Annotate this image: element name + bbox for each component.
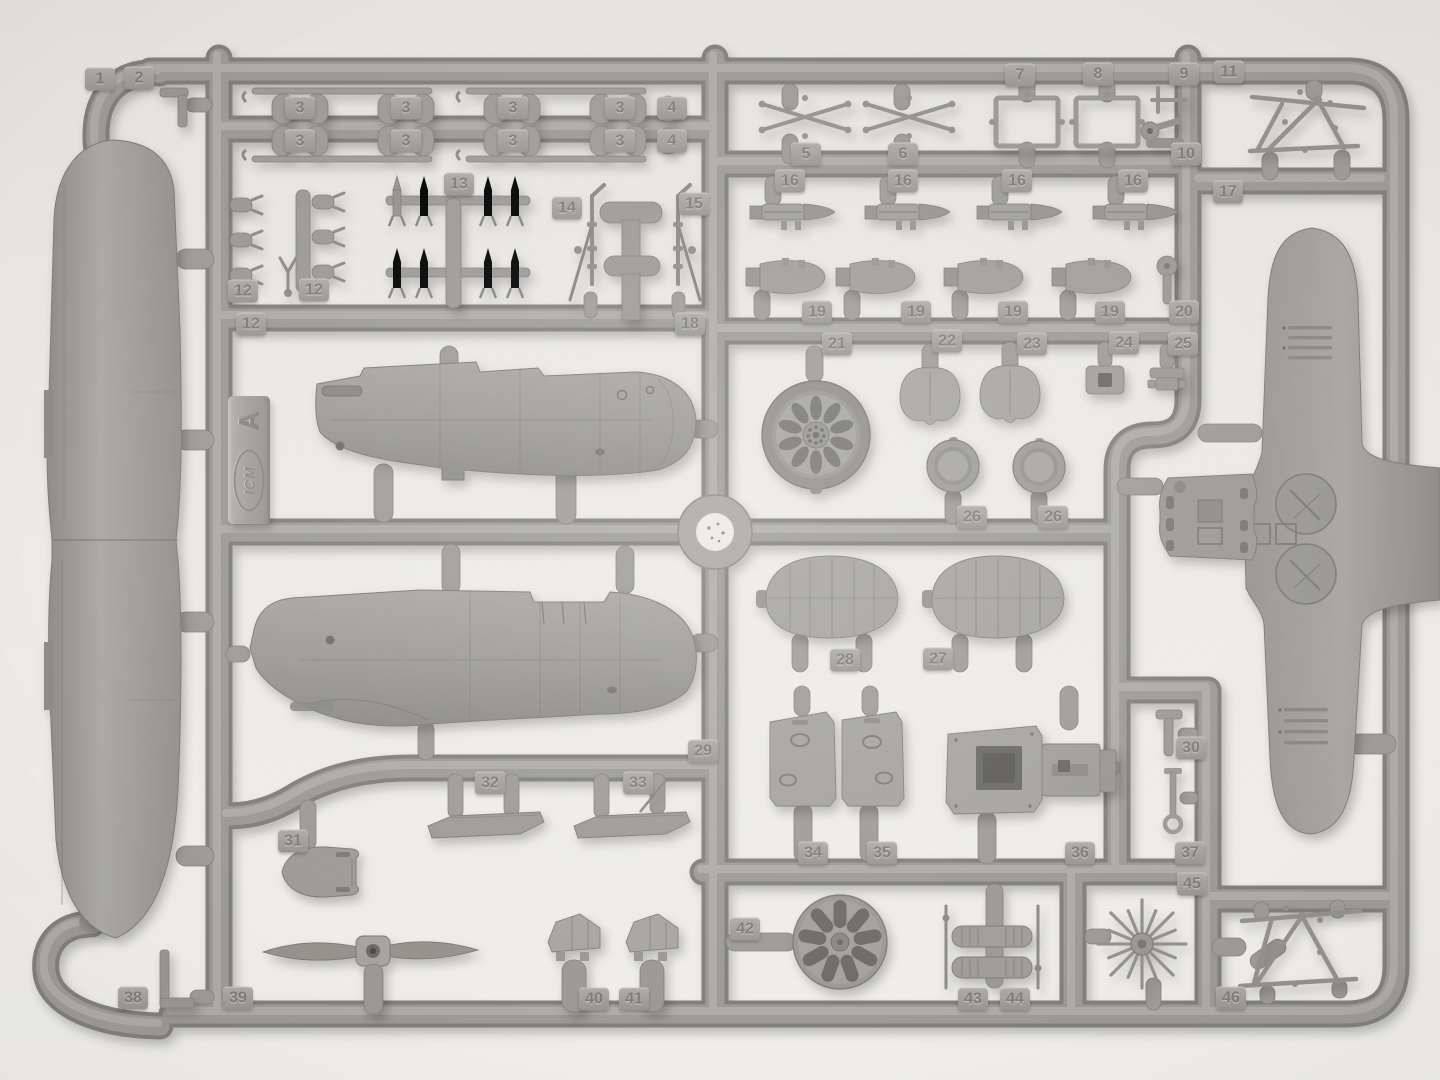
part-9-h-bracket xyxy=(1152,88,1186,112)
part-36-cockpit-floor xyxy=(946,726,1116,814)
part-45-pushrod-star xyxy=(1098,900,1186,988)
part-24-box xyxy=(1086,366,1124,394)
part-34-35-doors xyxy=(770,712,904,806)
part-19-bombs xyxy=(746,258,1131,293)
part-1-2-upper-wing-panels xyxy=(44,140,181,938)
part-l-bracket-top xyxy=(160,88,188,127)
part-13-rockets xyxy=(386,176,530,308)
part-fuselage-half-left xyxy=(250,590,696,726)
icm-logo: ICM xyxy=(234,450,265,512)
part-17-lower-wing xyxy=(1244,228,1440,834)
part-11-strut-triangle xyxy=(1250,89,1364,153)
sprue-id-tab: A ICM xyxy=(228,396,270,524)
part-39-l-bracket xyxy=(160,950,194,1008)
part-31-spinner xyxy=(282,847,359,897)
brand-text: ICM xyxy=(241,466,257,495)
part-fuselage-half-right xyxy=(316,362,696,480)
part-27-28-fabric-panels xyxy=(756,556,1064,638)
part-22-23-cushions xyxy=(900,366,1040,425)
injection-gate-hub xyxy=(678,495,752,569)
part-16-gun-pods xyxy=(750,204,1178,230)
part-43-44-cylinders xyxy=(943,884,1042,988)
part-37-key-pin xyxy=(1164,768,1182,832)
sprue-frame-and-parts xyxy=(0,0,1440,1080)
part-12-fork-pins xyxy=(230,190,344,297)
part-engine-cowling xyxy=(1159,474,1256,560)
part-21-wheel xyxy=(762,381,870,494)
sprue-photo: A ICM 1233334333345678910111212121314151… xyxy=(0,0,1440,1080)
part-20-ball-pin xyxy=(1157,256,1177,304)
sprue-letter: A xyxy=(234,412,265,432)
part-26-hub-covers xyxy=(927,437,1065,493)
part-40-41-windscreens xyxy=(548,914,678,1012)
part-42-engine-plate xyxy=(793,895,887,989)
part-7-8-frames xyxy=(989,91,1145,153)
